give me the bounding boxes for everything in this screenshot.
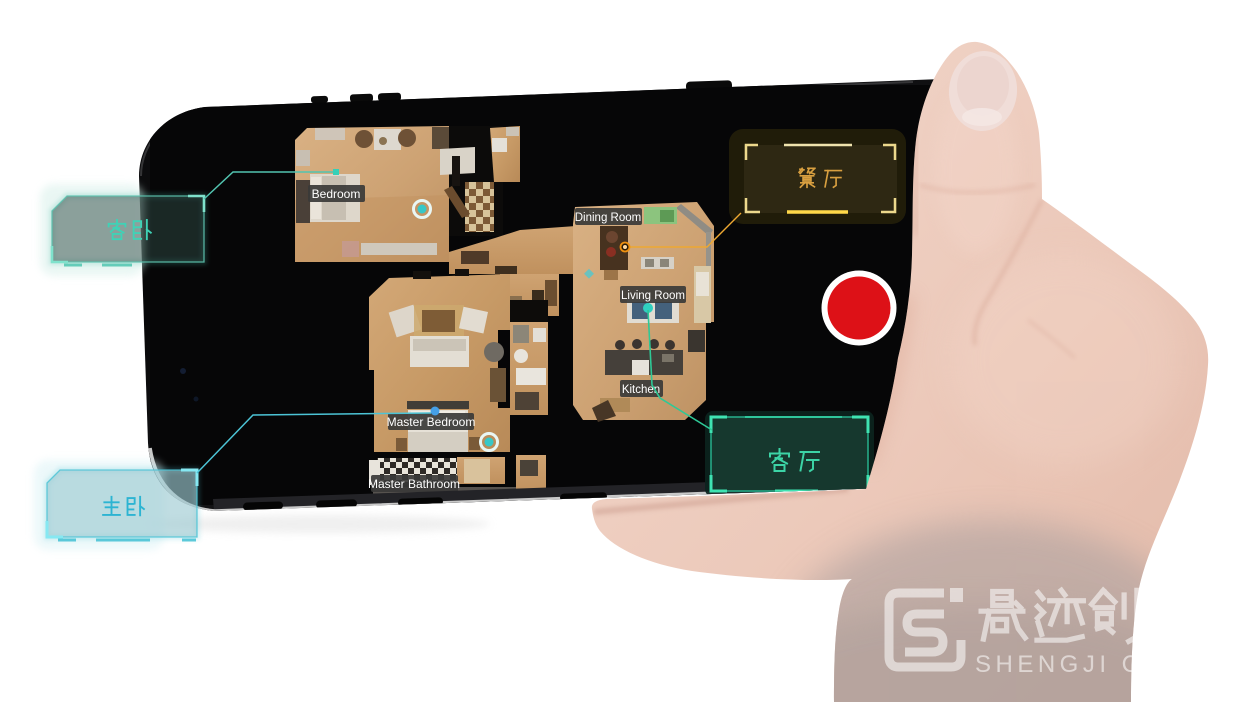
svg-text:Master Bathroom: Master Bathroom	[368, 477, 460, 491]
svg-text:Living Room: Living Room	[621, 290, 685, 302]
svg-text:SHENGJI CREA: SHENGJI CREA	[975, 651, 1206, 678]
svg-text:Dining Room: Dining Room	[575, 212, 641, 224]
svg-text:Master Bedroom: Master Bedroom	[387, 415, 476, 429]
svg-text:Bedroom: Bedroom	[312, 187, 361, 201]
